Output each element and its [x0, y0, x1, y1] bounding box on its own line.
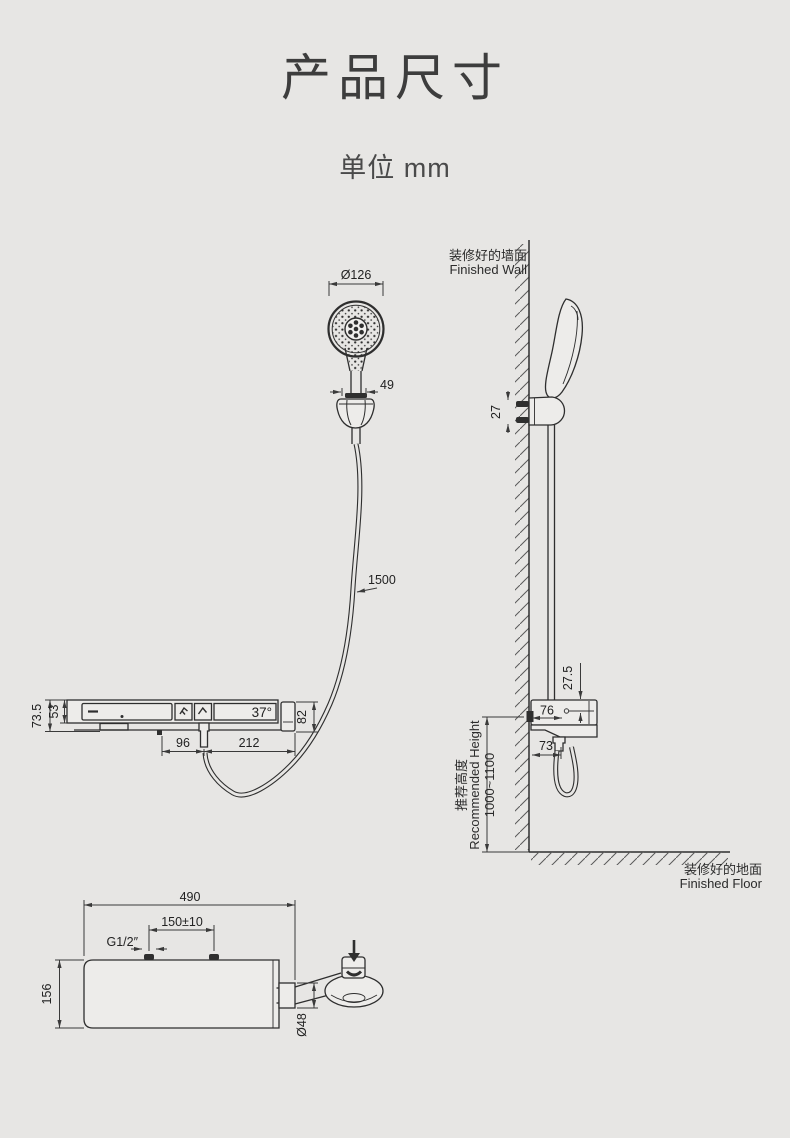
hose-outlet-top: [279, 983, 295, 1008]
dim-bottom-group: 96 212: [162, 733, 295, 756]
dim-total-height: 73.5: [30, 704, 44, 728]
side-view: 装修好的墙面 Finished Wall 装修好的地面 Finished Flo…: [449, 240, 763, 891]
temp-value: 37°: [252, 705, 272, 720]
bracket-bolt-bottom: [516, 417, 529, 423]
dim-total-depth: 156: [40, 984, 54, 1005]
bracket-bolt-top: [516, 401, 529, 407]
dim-thread-size: G1/2″: [106, 935, 138, 949]
dim-thread-group: G1/2″: [106, 935, 167, 949]
dim-panel-depth: 76: [540, 704, 554, 718]
panel-front-view: 37° 73.5 53: [30, 700, 318, 756]
inlet-nub-left: [144, 954, 154, 960]
hose-connector: [199, 723, 209, 747]
dim-head-diameter-group: Ø126: [329, 268, 383, 296]
shower-holder: [337, 399, 374, 428]
panel-top-body: [84, 960, 279, 1028]
dim-bolt-spacing: 27: [489, 405, 503, 419]
dim-bolt-spacing-group: 27: [489, 391, 508, 433]
inlet-nub-right: [209, 954, 219, 960]
floor-label-zh: 装修好的地面: [684, 862, 762, 877]
dim-hose-clearance: 73: [539, 739, 553, 753]
panel-top-view: 490 150±10 G1/2″ 156: [40, 890, 383, 1037]
height-label-en: Recommended Height: [467, 720, 482, 850]
dim-hose-to-end: 212: [239, 736, 260, 750]
dim-outlet-diameter-group: Ø48: [295, 983, 318, 1037]
dim-total-width: 490: [180, 890, 201, 904]
dim-hose-offset: 96: [176, 736, 190, 750]
wall-hatch: [515, 244, 529, 850]
dim-holder-width: 49: [380, 378, 394, 392]
dim-inlet-spacing-group: 150±10: [149, 915, 214, 951]
dim-end-cap-height: 82: [295, 710, 309, 724]
height-range: 1000~1100: [482, 753, 497, 817]
dim-head-diameter: Ø126: [341, 268, 372, 282]
panel-end-knob: [281, 702, 295, 731]
shower-hose: [205, 444, 360, 795]
dim-hose-length: 1500: [368, 573, 396, 587]
dim-panel-top-offset: 27.5: [561, 666, 575, 690]
dim-end-cap-height-group: 82: [295, 702, 318, 732]
dim-body-height: 53: [47, 705, 61, 719]
product-dimensions-page: 产品尺寸 单位 mm: [0, 0, 790, 1138]
dim-hose-length-group: 1500: [357, 573, 396, 592]
floor-label-en: Finished Floor: [680, 876, 763, 891]
indicator-dot: [121, 715, 124, 718]
dim-inlet-spacing: 150±10: [161, 915, 203, 929]
panel-wall-mount: [527, 711, 534, 722]
panel-shelf-side: [531, 725, 597, 737]
wall-label-en: Finished Wall: [449, 262, 527, 277]
dim-outlet-diameter: Ø48: [295, 1013, 309, 1037]
technical-drawing: Ø126 49 1500: [0, 0, 790, 1138]
wall-label-zh: 装修好的墙面: [449, 248, 527, 263]
dim-total-depth-group: 156: [40, 960, 84, 1028]
